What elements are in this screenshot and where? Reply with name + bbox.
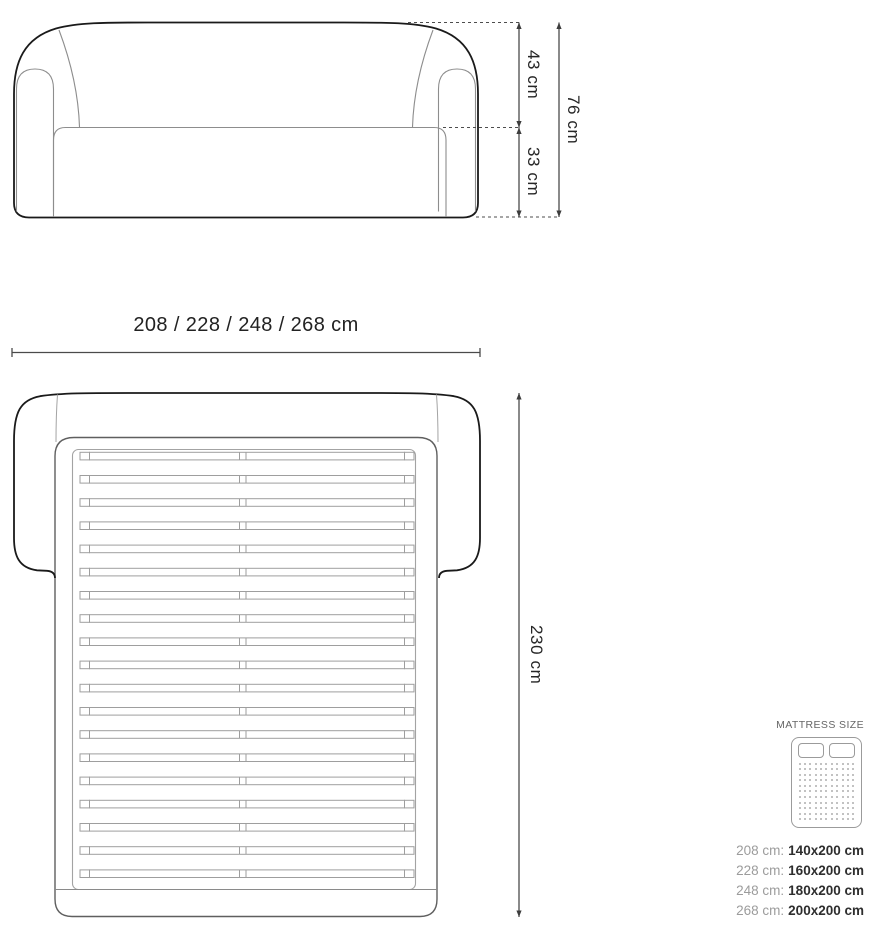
mattress-dot bbox=[809, 768, 811, 770]
mattress-size-row: 268 cm:200x200 cm bbox=[700, 901, 864, 921]
mattress-dot bbox=[804, 785, 806, 787]
bed-slat bbox=[80, 568, 90, 576]
mattress-dot bbox=[809, 785, 811, 787]
bed-slat bbox=[80, 661, 90, 669]
mattress-dot bbox=[842, 763, 844, 765]
bed-slat bbox=[90, 847, 405, 855]
mattress-dot bbox=[825, 796, 827, 798]
mattress-dot bbox=[831, 785, 833, 787]
mattress-dot bbox=[820, 790, 822, 792]
mattress-dot bbox=[847, 796, 849, 798]
mattress-dot bbox=[836, 818, 838, 820]
bed-slat bbox=[405, 522, 415, 530]
bed-slat bbox=[80, 777, 90, 785]
mattress-dot bbox=[820, 802, 822, 804]
width-dimension bbox=[12, 348, 480, 357]
sofa-bed-dimension-diagram: 43 cm 33 cm 76 cm 208 / 228 / 248 / 268 … bbox=[0, 0, 880, 930]
mattress-size-row: 248 cm:180x200 cm bbox=[700, 881, 864, 901]
mattress-dot bbox=[799, 818, 801, 820]
mattress-dot bbox=[842, 779, 844, 781]
bed-slat bbox=[90, 615, 405, 623]
mattress-dot bbox=[847, 763, 849, 765]
mattress-dot bbox=[831, 779, 833, 781]
mattress-dot bbox=[820, 818, 822, 820]
mattress-dot bbox=[815, 774, 817, 776]
mattress-dot bbox=[825, 768, 827, 770]
size-option-label: 268 cm: bbox=[736, 903, 784, 918]
mattress-dot bbox=[842, 790, 844, 792]
mattress-dot bbox=[847, 768, 849, 770]
bed-slat bbox=[405, 615, 415, 623]
bed-slat bbox=[90, 800, 405, 808]
mattress-dot bbox=[836, 763, 838, 765]
sofa-front-right-back-seam bbox=[413, 30, 434, 127]
mattress-dot bbox=[804, 807, 806, 809]
mattress-dot bbox=[825, 763, 827, 765]
mattress-dot bbox=[852, 785, 854, 787]
size-option-value: 180x200 cm bbox=[788, 883, 864, 898]
size-option-value: 200x200 cm bbox=[788, 903, 864, 918]
bed-slat bbox=[80, 452, 90, 460]
label-back-height: 43 cm bbox=[521, 22, 545, 128]
mattress-dot bbox=[847, 807, 849, 809]
sofa-front-right-arm-line bbox=[439, 69, 476, 212]
mattress-dot bbox=[836, 768, 838, 770]
diagram-linework bbox=[0, 0, 880, 930]
bed-slat bbox=[90, 684, 405, 692]
mattress-dot bbox=[799, 796, 801, 798]
label-total-height: 76 cm bbox=[561, 22, 585, 217]
bed-slat bbox=[90, 731, 405, 739]
mattress-dot bbox=[809, 774, 811, 776]
size-option-label: 248 cm: bbox=[736, 883, 784, 898]
mattress-dot bbox=[809, 790, 811, 792]
mattress-dot bbox=[820, 807, 822, 809]
bed-slat bbox=[90, 708, 405, 716]
bed-slat bbox=[80, 476, 90, 484]
bed-slat bbox=[80, 522, 90, 530]
bed-slat bbox=[405, 800, 415, 808]
mattress-dot bbox=[820, 813, 822, 815]
mattress-dot bbox=[809, 779, 811, 781]
bed-slat bbox=[405, 777, 415, 785]
mattress-dot bbox=[831, 763, 833, 765]
mattress-dot bbox=[804, 763, 806, 765]
label-seat-height: 33 cm bbox=[521, 127, 545, 217]
mattress-dot bbox=[852, 790, 854, 792]
mattress-dot bbox=[820, 779, 822, 781]
bed-slat bbox=[80, 754, 90, 762]
bed-slat bbox=[90, 522, 405, 530]
mattress-dot bbox=[852, 807, 854, 809]
mattress-dot bbox=[815, 779, 817, 781]
mattress-dot bbox=[799, 763, 801, 765]
mattress-dot bbox=[842, 802, 844, 804]
mattress-dot bbox=[831, 813, 833, 815]
mattress-dot bbox=[825, 818, 827, 820]
mattress-dot bbox=[836, 790, 838, 792]
mattress-dot bbox=[799, 790, 801, 792]
bed-slat bbox=[405, 661, 415, 669]
bed-slat bbox=[405, 499, 415, 507]
mattress-dot bbox=[809, 807, 811, 809]
bed-frame-outline bbox=[55, 438, 437, 917]
bed-slat bbox=[405, 870, 415, 878]
mattress-dot bbox=[815, 790, 817, 792]
arrowhead bbox=[516, 911, 521, 918]
sofa-front-left-arm-line bbox=[17, 69, 54, 212]
bed-slat bbox=[90, 568, 405, 576]
mattress-dot bbox=[825, 807, 827, 809]
sofa-top-outline bbox=[14, 393, 480, 578]
mattress-dot bbox=[809, 813, 811, 815]
mattress-dot bbox=[825, 785, 827, 787]
mattress-dot bbox=[831, 774, 833, 776]
sofa-top-left-seam bbox=[56, 395, 58, 443]
bed-slat bbox=[405, 754, 415, 762]
mattress-dot bbox=[836, 785, 838, 787]
mattress-dot bbox=[836, 802, 838, 804]
bed-slat bbox=[80, 870, 90, 878]
mattress-dot bbox=[847, 813, 849, 815]
mattress-dot bbox=[847, 779, 849, 781]
sofa-front-outline bbox=[14, 23, 478, 218]
mattress-dot bbox=[831, 802, 833, 804]
label-depth: 230 cm bbox=[523, 393, 549, 917]
bed-slat bbox=[90, 661, 405, 669]
bed-slat bbox=[405, 638, 415, 646]
mattress-dot bbox=[852, 774, 854, 776]
mattress-dot bbox=[852, 813, 854, 815]
bed-slat bbox=[405, 545, 415, 553]
mattress-dot bbox=[804, 774, 806, 776]
mattress-dot bbox=[820, 768, 822, 770]
pillow-icon bbox=[829, 743, 855, 758]
label-widths: 208 / 228 / 248 / 268 cm bbox=[12, 314, 480, 337]
mattress-dot bbox=[825, 779, 827, 781]
bed-slat bbox=[80, 800, 90, 808]
mattress-size-list: 208 cm:140x200 cm 228 cm:160x200 cm 248 … bbox=[700, 841, 864, 921]
mattress-dot bbox=[825, 790, 827, 792]
mattress-dot bbox=[799, 785, 801, 787]
bed-slat bbox=[405, 452, 415, 460]
bed-slat bbox=[80, 615, 90, 623]
mattress-dot bbox=[836, 813, 838, 815]
mattress-dot bbox=[820, 774, 822, 776]
mattress-dot bbox=[804, 818, 806, 820]
size-option-value: 140x200 cm bbox=[788, 843, 864, 858]
mattress-dot bbox=[842, 768, 844, 770]
bed-slat bbox=[80, 847, 90, 855]
bed-slat bbox=[80, 545, 90, 553]
mattress-dot bbox=[847, 802, 849, 804]
bed-slat bbox=[405, 731, 415, 739]
mattress-size-title: MATTRESS SIZE bbox=[740, 719, 864, 731]
mattress-dot bbox=[842, 807, 844, 809]
bed-slat bbox=[80, 731, 90, 739]
mattress-dot bbox=[799, 768, 801, 770]
mattress-dot bbox=[847, 818, 849, 820]
mattress-dot bbox=[804, 813, 806, 815]
mattress-dot bbox=[820, 785, 822, 787]
mattress-dot bbox=[847, 774, 849, 776]
bed-slat bbox=[80, 708, 90, 716]
mattress-dot bbox=[799, 802, 801, 804]
bed-slat bbox=[90, 499, 405, 507]
bed-slat bbox=[405, 476, 415, 484]
bed-slat bbox=[80, 684, 90, 692]
mattress-dot bbox=[809, 763, 811, 765]
mattress-dot bbox=[852, 779, 854, 781]
mattress-dot bbox=[831, 818, 833, 820]
arrowhead bbox=[516, 393, 521, 400]
mattress-dot bbox=[847, 785, 849, 787]
mattress-dot bbox=[852, 796, 854, 798]
mattress-dot bbox=[842, 813, 844, 815]
mattress-dot bbox=[815, 796, 817, 798]
mattress-dot bbox=[809, 796, 811, 798]
mattress-dot bbox=[804, 802, 806, 804]
mattress-dot bbox=[831, 807, 833, 809]
mattress-dot bbox=[836, 796, 838, 798]
sofa-top-right-seam bbox=[437, 395, 439, 443]
size-option-label: 208 cm: bbox=[736, 843, 784, 858]
mattress-dot bbox=[809, 802, 811, 804]
mattress-dot bbox=[831, 768, 833, 770]
mattress-dot bbox=[852, 818, 854, 820]
top-view-diagram bbox=[14, 393, 522, 917]
bed-slat bbox=[405, 824, 415, 832]
bed-slat bbox=[90, 545, 405, 553]
mattress-dots bbox=[797, 761, 856, 822]
bed-slat bbox=[90, 592, 405, 600]
mattress-dot bbox=[831, 796, 833, 798]
mattress-dot bbox=[815, 785, 817, 787]
bed-slat bbox=[90, 452, 405, 460]
bed-slat bbox=[405, 847, 415, 855]
bed-slat bbox=[90, 824, 405, 832]
bed-slat bbox=[90, 638, 405, 646]
mattress-dot bbox=[799, 774, 801, 776]
mattress-size-row: 208 cm:140x200 cm bbox=[700, 841, 864, 861]
bed-slat bbox=[405, 592, 415, 600]
sofa-front-left-back-seam bbox=[59, 30, 80, 127]
mattress-dot bbox=[809, 818, 811, 820]
mattress-dot bbox=[825, 774, 827, 776]
mattress-dot bbox=[842, 774, 844, 776]
mattress-dot bbox=[815, 818, 817, 820]
mattress-dot bbox=[852, 763, 854, 765]
mattress-dot bbox=[820, 796, 822, 798]
mattress-dot bbox=[799, 779, 801, 781]
bed-slat bbox=[90, 754, 405, 762]
bed-slat bbox=[405, 684, 415, 692]
mattress-dot bbox=[804, 779, 806, 781]
mattress-icon bbox=[791, 737, 862, 828]
mattress-dot bbox=[804, 796, 806, 798]
mattress-dot bbox=[852, 768, 854, 770]
size-option-label: 228 cm: bbox=[736, 863, 784, 878]
mattress-dot bbox=[815, 802, 817, 804]
mattress-dot bbox=[825, 802, 827, 804]
size-option-value: 160x200 cm bbox=[788, 863, 864, 878]
bed-slat bbox=[405, 708, 415, 716]
mattress-dot bbox=[836, 774, 838, 776]
mattress-dot bbox=[820, 763, 822, 765]
mattress-dot bbox=[842, 796, 844, 798]
bed-slat bbox=[90, 870, 405, 878]
mattress-dot bbox=[804, 768, 806, 770]
slats bbox=[80, 452, 414, 877]
bed-slat bbox=[90, 476, 405, 484]
bed-slat bbox=[405, 568, 415, 576]
mattress-dot bbox=[842, 818, 844, 820]
bed-slat bbox=[80, 638, 90, 646]
bed-slat bbox=[90, 777, 405, 785]
sofa-front-seat-line bbox=[54, 128, 447, 218]
pillow-icon bbox=[798, 743, 824, 758]
front-view-diagram bbox=[14, 23, 562, 218]
mattress-dot bbox=[815, 768, 817, 770]
mattress-dot bbox=[842, 785, 844, 787]
mattress-dot bbox=[836, 807, 838, 809]
bed-slat bbox=[80, 592, 90, 600]
mattress-dot bbox=[836, 779, 838, 781]
mattress-dot bbox=[815, 813, 817, 815]
mattress-dot bbox=[799, 813, 801, 815]
mattress-dot bbox=[799, 807, 801, 809]
mattress-size-row: 228 cm:160x200 cm bbox=[700, 861, 864, 881]
mattress-dot bbox=[815, 763, 817, 765]
mattress-dot bbox=[852, 802, 854, 804]
mattress-dot bbox=[804, 790, 806, 792]
bed-slat bbox=[80, 824, 90, 832]
mattress-dot bbox=[831, 790, 833, 792]
mattress-dot bbox=[825, 813, 827, 815]
bed-slat bbox=[80, 499, 90, 507]
mattress-dot bbox=[815, 807, 817, 809]
mattress-dot bbox=[847, 790, 849, 792]
